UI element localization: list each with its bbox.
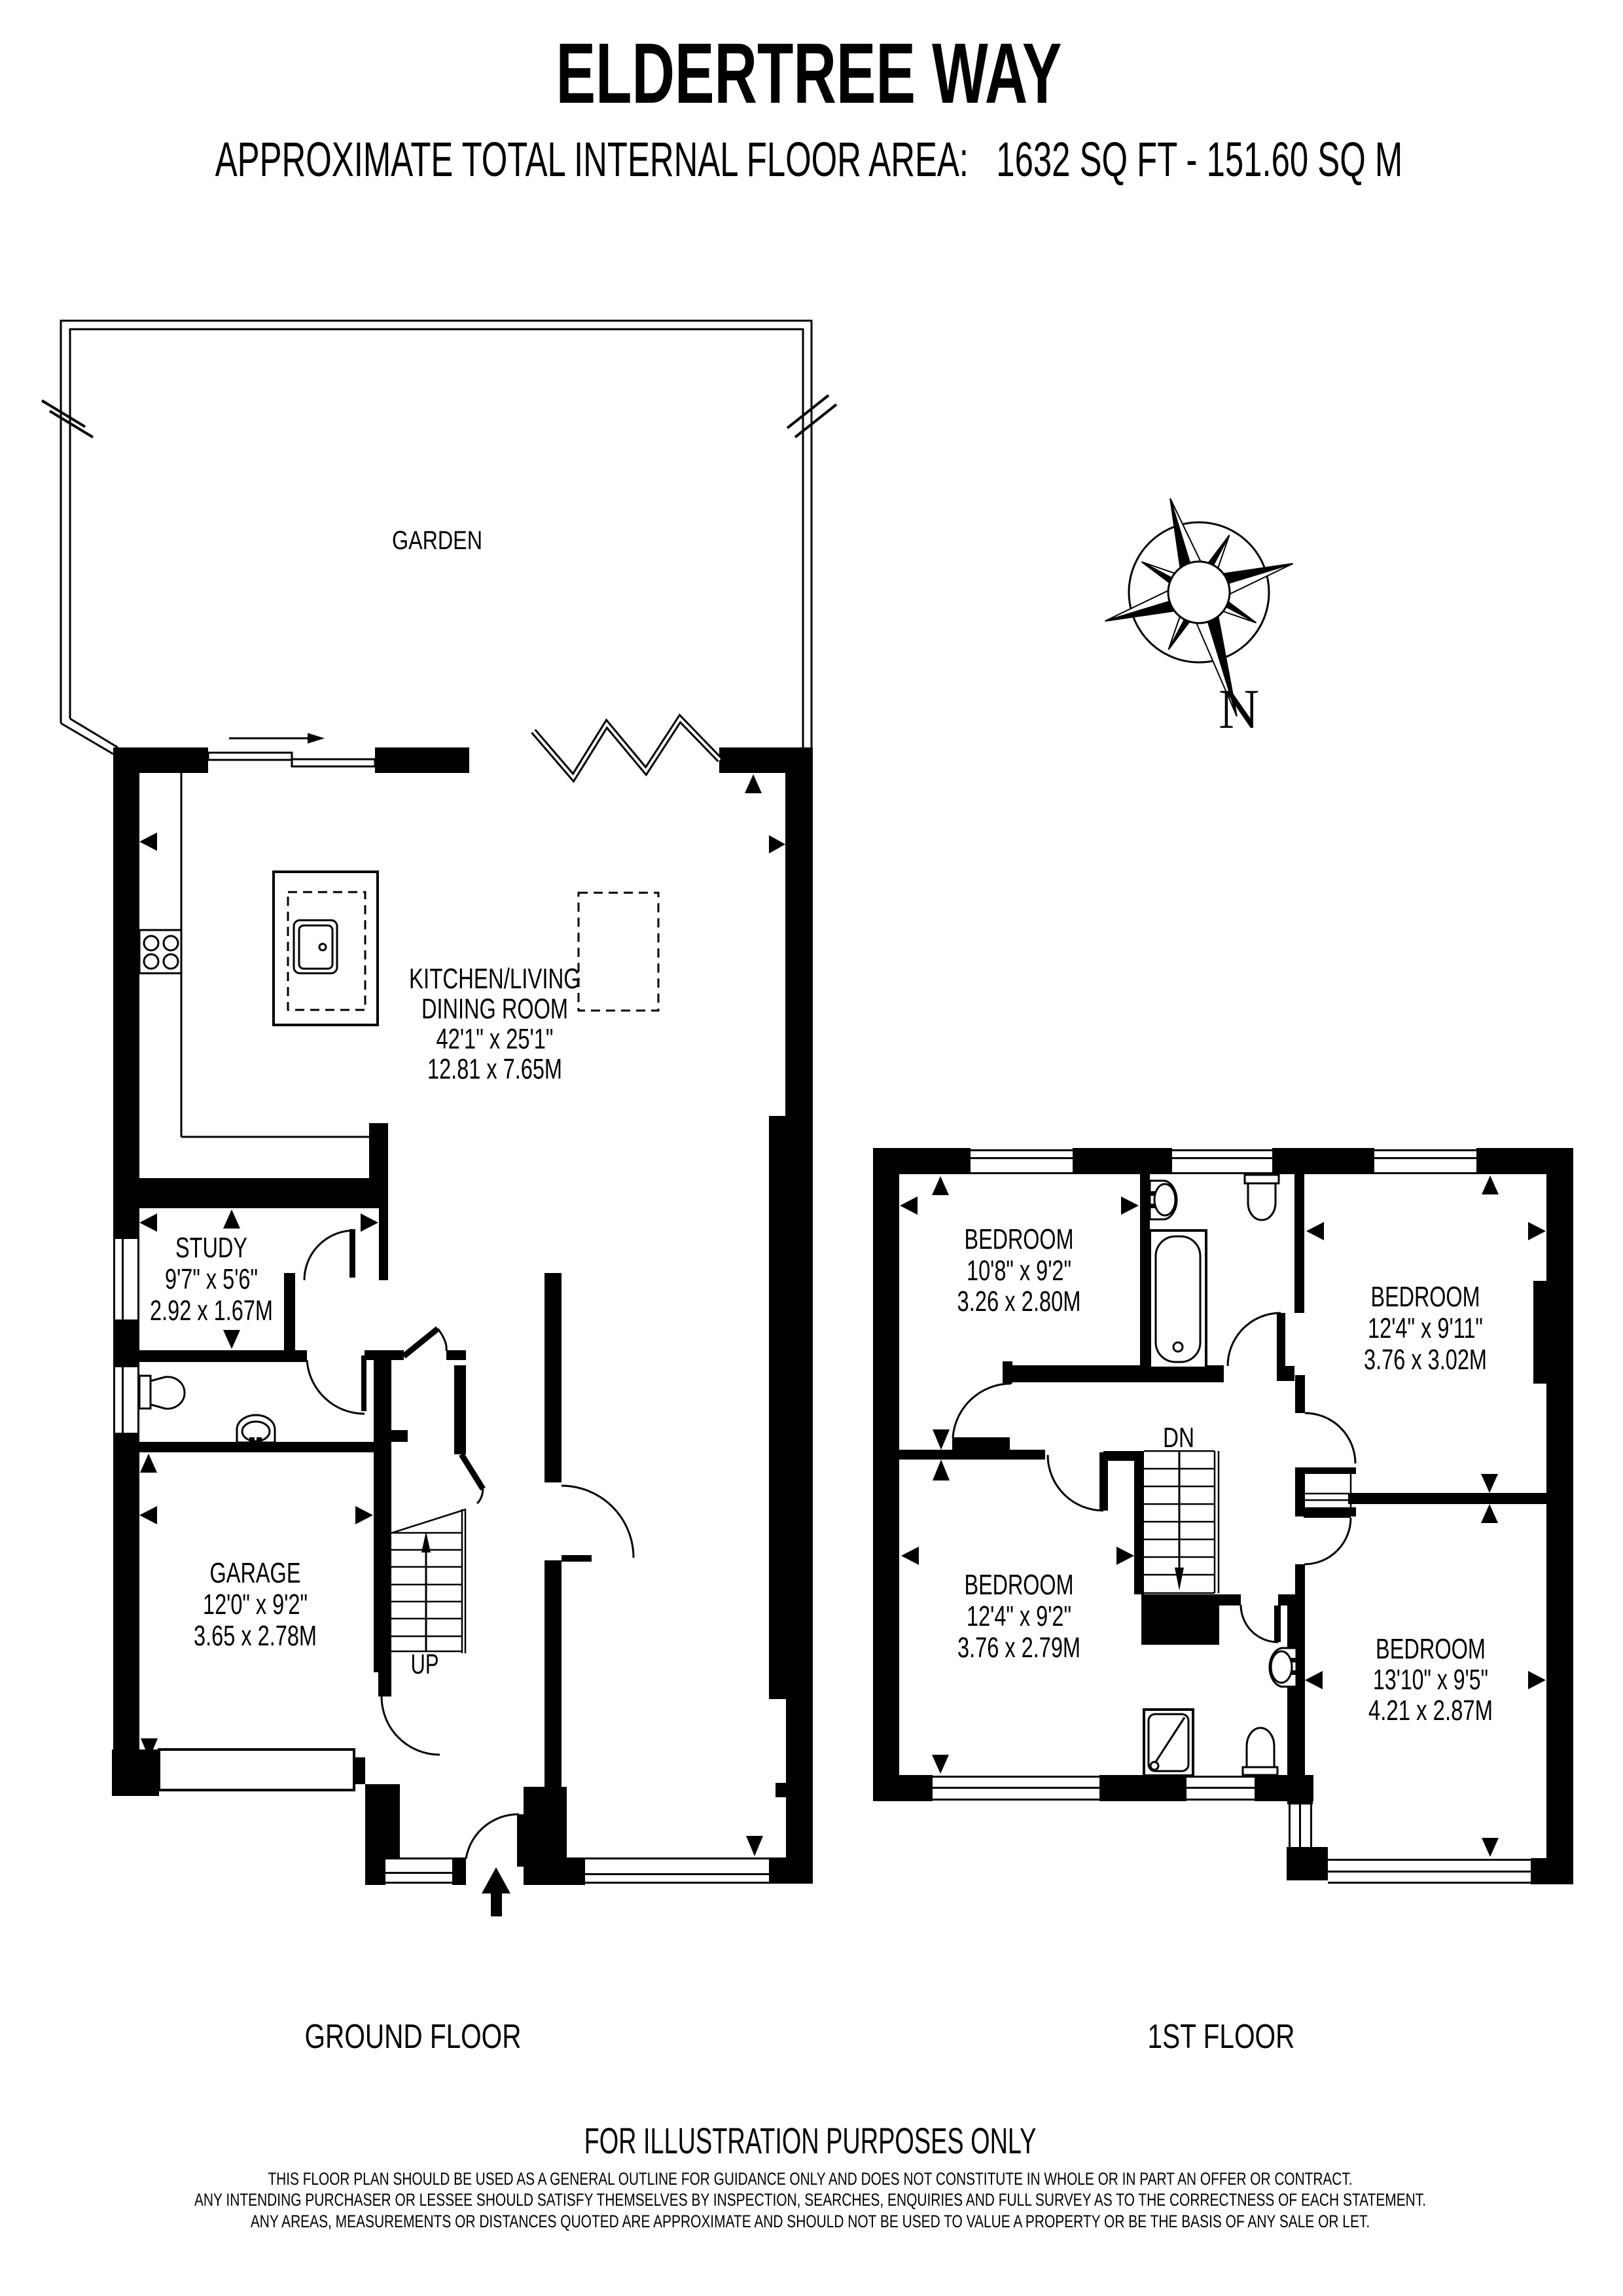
svg-text:3.76 x 2.79M: 3.76 x 2.79M [957, 1632, 1080, 1664]
svg-text:3.65 x 2.78M: 3.65 x 2.78M [194, 1620, 317, 1652]
svg-text:4.21 x 2.87M: 4.21 x 2.87M [1368, 1695, 1493, 1727]
svg-text:KITCHEN/LIVING: KITCHEN/LIVING [409, 963, 580, 996]
svg-text:N: N [1219, 677, 1259, 740]
svg-text:12.81 x 7.65M: 12.81 x 7.65M [427, 1053, 562, 1085]
svg-text:ANY AREAS, MEASUREMENTS OR DIS: ANY AREAS, MEASUREMENTS OR DISTANCES QUO… [251, 2212, 1370, 2232]
svg-text:DN: DN [1163, 1422, 1194, 1454]
svg-text:UP: UP [411, 1648, 439, 1679]
svg-text:FOR ILLUSTRATION PURPOSES ONLY: FOR ILLUSTRATION PURPOSES ONLY [584, 2121, 1037, 2162]
svg-text:12'4" x 9'11": 12'4" x 9'11" [1368, 1312, 1483, 1344]
svg-text:12'0" x 9'2": 12'0" x 9'2" [203, 1588, 308, 1621]
svg-text:ELDERTREE WAY: ELDERTREE WAY [556, 25, 1062, 120]
svg-text:GARDEN: GARDEN [392, 526, 482, 555]
svg-text:DINING ROOM: DINING ROOM [421, 993, 568, 1025]
svg-text:STUDY: STUDY [175, 1232, 247, 1264]
svg-text:GARAGE: GARAGE [210, 1557, 301, 1589]
svg-text:ANY INTENDING PURCHASER OR LES: ANY INTENDING PURCHASER OR LESSEE SHOULD… [194, 2191, 1426, 2210]
svg-text:GROUND FLOOR: GROUND FLOOR [305, 2017, 522, 2055]
svg-text:3.76 x 3.02M: 3.76 x 3.02M [1364, 1344, 1487, 1376]
svg-text:BEDROOM: BEDROOM [965, 1223, 1074, 1255]
svg-text:10'8" x 9'2": 10'8" x 9'2" [967, 1255, 1071, 1287]
svg-text:BEDROOM: BEDROOM [1371, 1281, 1480, 1313]
svg-text:APPROXIMATE TOTAL INTERNAL FLO: APPROXIMATE TOTAL INTERNAL FLOOR AREA: 1… [215, 134, 1403, 187]
svg-text:THIS FLOOR PLAN SHOULD BE USED: THIS FLOOR PLAN SHOULD BE USED AS A GENE… [268, 2169, 1352, 2189]
svg-text:13'10" x 9'5": 13'10" x 9'5" [1373, 1664, 1488, 1696]
svg-text:BEDROOM: BEDROOM [1376, 1633, 1486, 1665]
svg-text:12'4" x 9'2": 12'4" x 9'2" [967, 1600, 1071, 1632]
svg-text:BEDROOM: BEDROOM [965, 1569, 1074, 1601]
svg-text:3.26 x 2.80M: 3.26 x 2.80M [957, 1285, 1081, 1318]
svg-text:1ST FLOOR: 1ST FLOOR [1148, 2017, 1295, 2055]
svg-text:2.92 x 1.67M: 2.92 x 1.67M [150, 1295, 273, 1327]
svg-text:42'1" x 25'1": 42'1" x 25'1" [437, 1023, 554, 1055]
svg-text:9'7" x 5'6": 9'7" x 5'6" [165, 1263, 258, 1295]
